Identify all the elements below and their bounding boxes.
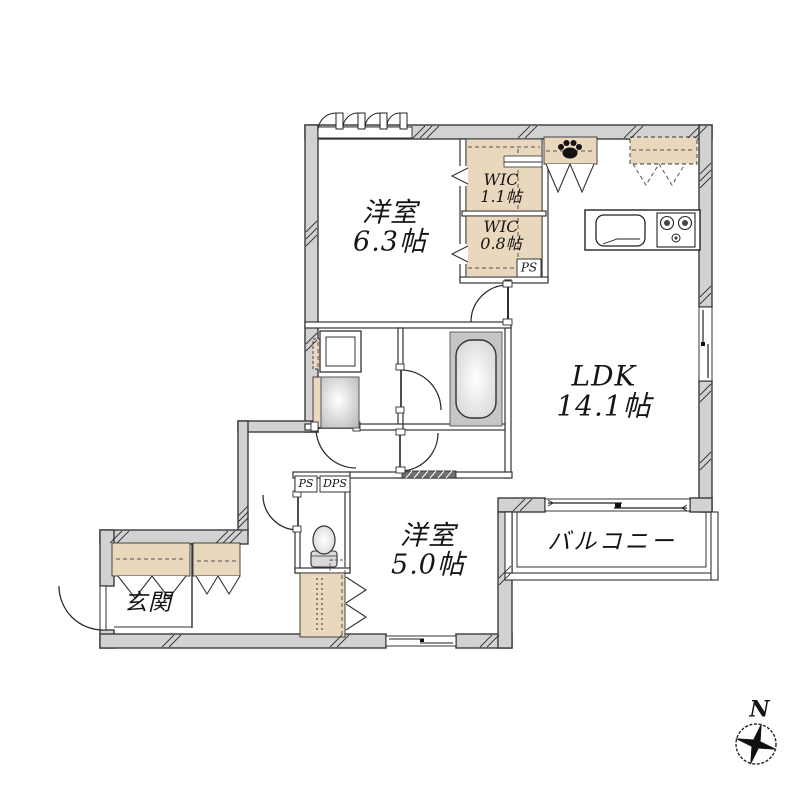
overhead-cabinet-dashed-doors	[633, 164, 685, 185]
balcony-sliding-window	[545, 499, 690, 511]
wall	[690, 498, 712, 512]
kitchen-sink	[596, 215, 645, 246]
ldk-size: 14.1帖	[556, 389, 651, 422]
wic-notch	[504, 156, 542, 167]
dps-label-hall: DPS	[323, 478, 347, 490]
room-label-balcony: バルコニー	[547, 530, 677, 554]
stove	[657, 213, 695, 247]
balcony-name: バルコニー	[547, 529, 677, 555]
shoe-cabinet-right	[193, 543, 240, 576]
bedroom2-closet-doors	[346, 577, 366, 603]
room-label-entrance: 玄関	[124, 591, 172, 615]
wic-upper-size: 1.1帖	[480, 187, 521, 206]
washing-machine	[320, 331, 361, 372]
room-label-bedroom2: 洋室 5.0帖	[391, 522, 465, 579]
floor-plan: 洋室 6.3帖 WIC 1.1帖 WIC 0.8帖 PS LDK 14.1帖 洋…	[0, 0, 800, 800]
kitchen-counter	[585, 210, 700, 250]
vanity-sink	[321, 377, 359, 428]
dps-hall-text: DPS	[323, 477, 347, 490]
compass	[736, 724, 777, 765]
door-bathroom	[396, 364, 441, 413]
bedroom1-name: 洋室	[362, 197, 418, 228]
vanity-side-cabinet	[313, 377, 321, 428]
ldk-name: LDK	[572, 359, 637, 392]
wall	[699, 125, 712, 307]
compass-north-label: N	[749, 698, 770, 721]
door-bedroom1	[471, 281, 512, 325]
toilet	[311, 526, 345, 573]
door-hallway-ldk	[396, 429, 438, 473]
bedroom2-size: 5.0帖	[391, 549, 465, 580]
door-entrance	[59, 586, 106, 630]
bedroom2-name: 洋室	[400, 520, 456, 551]
bathtub	[450, 332, 502, 426]
wall	[100, 530, 248, 544]
compass-north-text: N	[749, 696, 770, 722]
floor-plan-drawing	[0, 0, 800, 800]
room-label-wic-upper: WIC 1.1帖	[480, 172, 521, 206]
room-label-wic-lower: WIC 0.8帖	[480, 219, 521, 253]
ps-label-wic: PS	[521, 262, 537, 275]
door-washroom	[311, 422, 360, 468]
bedroom1-size: 6.3帖	[353, 226, 427, 257]
door-toilet	[263, 491, 301, 532]
sliding-door-strip	[402, 471, 456, 478]
ps-label-hall: PS	[299, 478, 314, 490]
right-wall-window	[699, 307, 712, 381]
ps-hall-text: PS	[299, 477, 314, 490]
ps-wic-text: PS	[521, 261, 537, 275]
pet-storage-doors	[546, 164, 570, 192]
room-label-bedroom1: 洋室 6.3帖	[353, 199, 427, 256]
bedroom2-window	[386, 636, 456, 646]
shaft-boxes	[295, 259, 541, 492]
wic-lower-size: 0.8帖	[480, 234, 521, 253]
entrance-name: 玄関	[124, 590, 172, 616]
room-label-ldk: LDK 14.1帖	[556, 361, 651, 420]
